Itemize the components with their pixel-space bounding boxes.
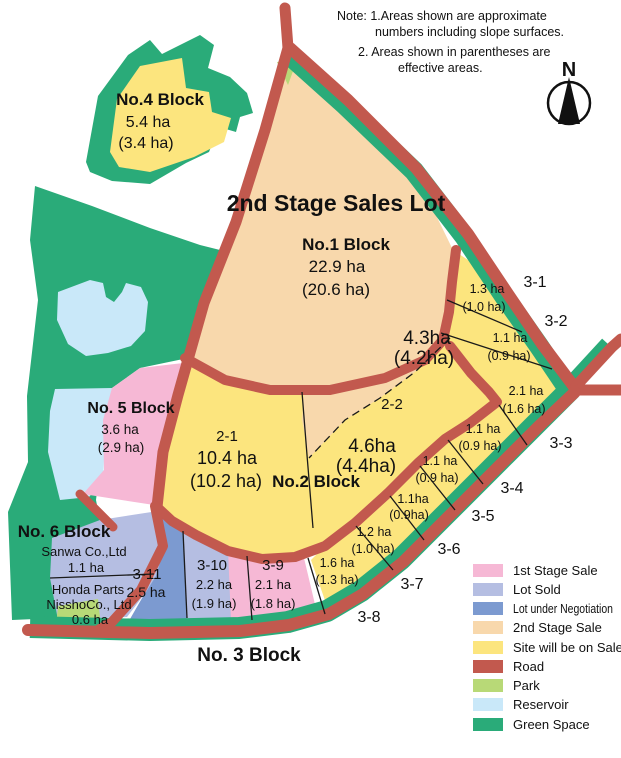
lot-3-9-id: 3-9 (262, 557, 284, 574)
lot-3-2-id: 3-2 (544, 313, 567, 330)
lot-3-5-area: 1.1 ha (423, 454, 458, 468)
note-line-2: numbers including slope surfaces. (375, 25, 564, 39)
lot-2-2-south-effective: (4.4ha) (336, 456, 396, 477)
no1-block-area-label: 22.9 ha (309, 257, 366, 276)
legend-swatch-road (473, 660, 503, 673)
lot-3-3-area: 2.1 ha (509, 384, 544, 398)
lot-2-1-effective: (10.2 ha) (190, 471, 262, 491)
lot-3-10-effective: (1.9 ha) (192, 596, 237, 611)
lot-3-6-id: 3-6 (437, 541, 460, 558)
lot-2-2-north-effective: (4.2ha) (394, 348, 454, 369)
lot-3-7-id: 3-7 (400, 576, 423, 593)
legend-label-on-sale: Site will be on Sale (513, 640, 621, 655)
lot-3-4-effective: (0.9 ha) (458, 439, 501, 453)
no6-block-label: No. 6 Block (18, 522, 111, 541)
legend-label-2nd-stage: 2nd Stage Sale (513, 620, 602, 635)
note-line-3: 2. Areas shown in parentheses are (358, 45, 551, 59)
lot-3-5-id: 3-5 (471, 508, 494, 525)
honda-company-line2: NisshoCo., Ltd (46, 597, 131, 612)
lot-3-4-id: 3-4 (500, 480, 523, 497)
no4-block-area-label: 5.4 ha (126, 114, 171, 131)
legend-label-park: Park (513, 678, 540, 693)
no5-block-area-label: 3.6 ha (101, 422, 139, 437)
lot-3-4-area: 1.1 ha (466, 422, 501, 436)
legend-swatch-2nd-stage (473, 621, 503, 634)
lot-3-6-area: 1.1ha (397, 492, 428, 506)
no1-block-label: No.1 Block (302, 235, 390, 254)
note-line-4: effective areas. (398, 61, 483, 75)
lot-3-7-effective: (1.0 ha) (351, 542, 394, 556)
lot-3-3-id: 3-3 (549, 435, 572, 452)
lot-2-1-area: 10.4 ha (197, 448, 258, 468)
honda-area-label: 0.6 ha (72, 612, 109, 627)
lot-2-2-south-area: 4.6ha (348, 436, 396, 457)
note-line-1: Note: 1.Areas shown are approximate (337, 9, 547, 23)
legend-swatch-green-space (473, 718, 503, 731)
legend-label-1st-stage: 1st Stage Sale (513, 563, 598, 578)
legend-swatch-reservoir (473, 698, 503, 711)
legend-swatch-1st-stage (473, 564, 503, 577)
legend-swatch-negotiation (473, 602, 503, 615)
lot-3-8-id: 3-8 (357, 609, 380, 626)
road-top-stub (285, 8, 288, 48)
legend-label-reservoir: Reservoir (513, 697, 569, 712)
no5-block-effective-label: (2.9 ha) (98, 440, 145, 455)
lot-3-3-effective: (1.6 ha) (502, 402, 545, 416)
no5-block-label: No. 5 Block (87, 400, 174, 417)
lot-3-8-effective: (1.3 ha) (315, 573, 358, 587)
lot-3-7-area: 1.2 ha (357, 525, 392, 539)
stage-title: 2nd Stage Sales Lot (227, 190, 446, 216)
legend-label-road: Road (513, 659, 544, 674)
legend-label-negotiation: Lot under Negotiation (513, 602, 613, 616)
no1-block-effective-label: (20.6 ha) (302, 280, 370, 299)
lot-3-5-effective: (0.9 ha) (415, 471, 458, 485)
no4-block-label: No.4 Block (116, 90, 204, 109)
sanwa-company-label: Sanwa Co.,Ltd (41, 544, 126, 559)
lot-3-11-area: 2.5 ha (127, 584, 166, 600)
lot-3-8-area: 1.6 ha (320, 556, 355, 570)
no3-block-label: No. 3 Block (197, 645, 301, 666)
legend-swatch-park (473, 679, 503, 692)
lot-3-10-id: 3-10 (197, 557, 227, 574)
lot-3-9-effective: (1.8 ha) (251, 596, 296, 611)
legend-label-lot-sold: Lot Sold (513, 582, 561, 597)
lot-2-2-id: 2-2 (381, 396, 403, 413)
lot-3-1-area: 1.3 ha (470, 282, 505, 296)
site-map: Note: 1.Areas shown are approximate numb… (0, 0, 621, 758)
legend-swatch-on-sale (473, 641, 503, 654)
sanwa-area-label: 1.1 ha (68, 560, 105, 575)
legend-label-green-space: Green Space (513, 717, 590, 732)
no4-block-effective-label: (3.4 ha) (118, 135, 173, 152)
lot-3-10-area: 2.2 ha (196, 577, 233, 592)
lot-3-2-effective: (0.9 ha) (487, 349, 530, 363)
lot-2-1-id: 2-1 (216, 428, 238, 445)
lot-3-1-effective: (1.0 ha) (462, 300, 505, 314)
lot-2-2-north-area: 4.3ha (403, 328, 451, 349)
lot-3-2-area: 1.1 ha (493, 331, 528, 345)
honda-company-line1: Honda Parts (52, 582, 125, 597)
lot-3-1-id: 3-1 (523, 274, 546, 291)
lot-3-9-area: 2.1 ha (255, 577, 292, 592)
lot-3-11-id: 3-11 (133, 566, 162, 583)
lot-3-6-effective: (0.9ha) (389, 508, 429, 522)
land-sales-map-page: Note: 1.Areas shown are approximate numb… (0, 0, 621, 758)
legend-swatch-lot-sold (473, 583, 503, 596)
